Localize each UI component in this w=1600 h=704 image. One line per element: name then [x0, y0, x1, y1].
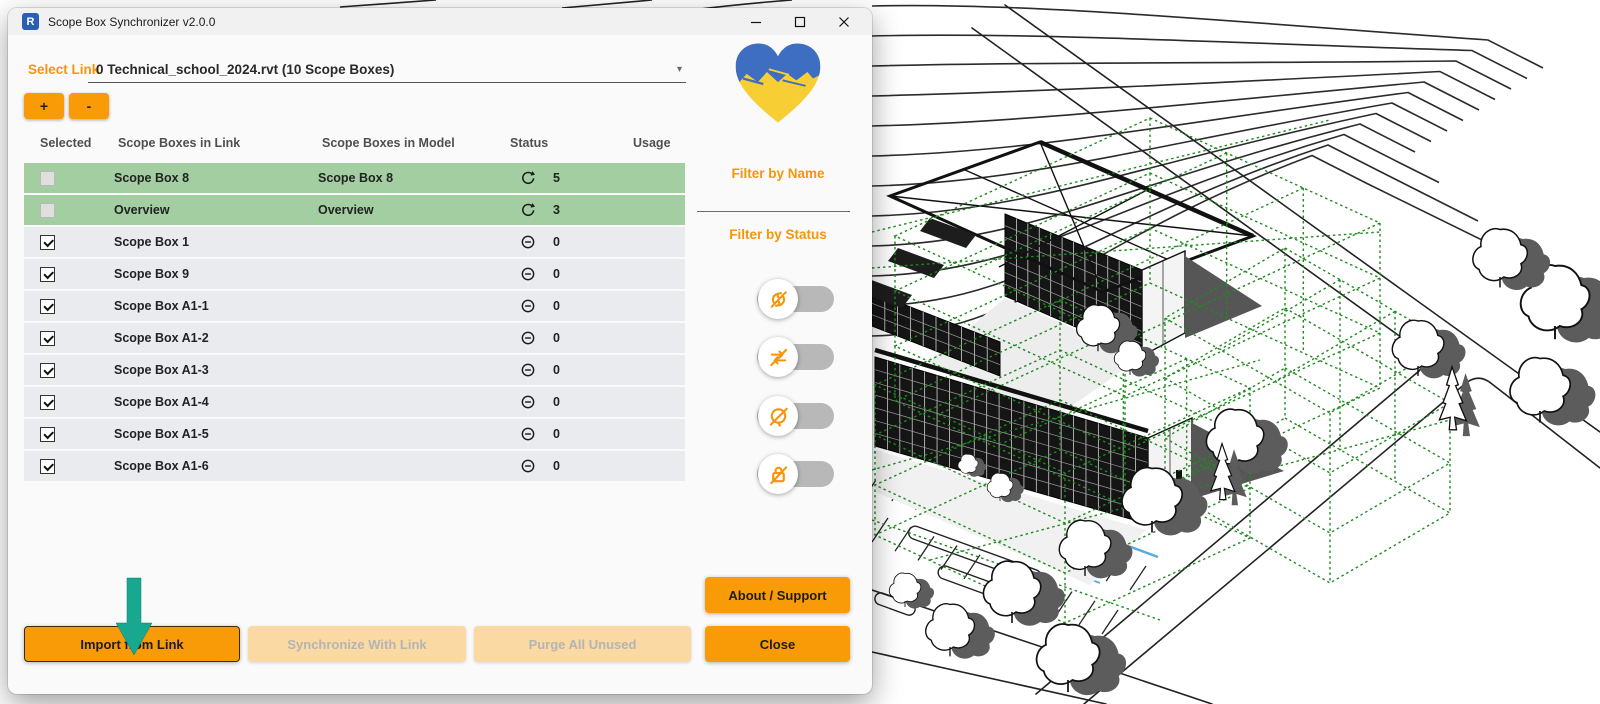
minimize-button[interactable] [734, 8, 778, 35]
status-icon [519, 234, 537, 248]
usage-count: 0 [553, 291, 685, 321]
block-off-icon [758, 396, 798, 436]
usage-count: 5 [553, 163, 685, 193]
scope-box-link-name: Scope Box 8 [114, 163, 318, 193]
status-icon [519, 330, 537, 344]
scope-box-link-name: Scope Box A1-3 [114, 355, 318, 385]
close-dialog-button[interactable]: Close [705, 626, 850, 662]
row-checkbox[interactable] [40, 363, 55, 378]
usage-count: 0 [553, 387, 685, 417]
about-support-button[interactable]: About / Support [705, 577, 850, 613]
screen: R Scope Box Synchronizer v2.0.0 Select L… [0, 0, 1600, 704]
table-header: Selected Scope Boxes in Link Scope Boxes… [24, 136, 685, 156]
column-selected: Selected [40, 136, 91, 150]
usage-count: 0 [553, 323, 685, 353]
table-row[interactable]: Scope Box A1-5 0 [24, 419, 685, 449]
table-row[interactable]: Scope Box 9 0 [24, 259, 685, 289]
table-row[interactable]: Scope Box 8 Scope Box 8 5 [24, 163, 685, 193]
table-row[interactable]: Scope Box A1-3 0 [24, 355, 685, 385]
scope-box-link-name: Overview [114, 195, 318, 225]
scope-box-link-name: Scope Box A1-1 [114, 291, 318, 321]
add-link-button[interactable]: + [24, 93, 64, 119]
maximize-button[interactable] [778, 8, 822, 35]
usage-count: 0 [553, 419, 685, 449]
row-checkbox[interactable] [40, 171, 55, 186]
swap-arrows-off-icon [758, 337, 798, 377]
status-icon [519, 394, 537, 408]
scope-box-link-name: Scope Box 1 [114, 227, 318, 257]
table-row[interactable]: Overview Overview 3 [24, 195, 685, 225]
status-icon [519, 362, 537, 376]
scope-box-link-name: Scope Box A1-2 [114, 323, 318, 353]
column-usage: Usage [633, 136, 671, 150]
filter-name-input[interactable] [697, 211, 850, 212]
ukraine-heart-logo [732, 40, 824, 128]
toggle-filter-lock-off[interactable] [755, 454, 841, 494]
link-dropdown[interactable]: 0 Technical_school_2024.rvt (10 Scope Bo… [88, 56, 686, 83]
row-checkbox[interactable] [40, 235, 55, 250]
status-icon [519, 458, 537, 472]
usage-count: 0 [553, 355, 685, 385]
usage-count: 0 [553, 227, 685, 257]
row-checkbox[interactable] [40, 395, 55, 410]
scope-box-table: Scope Box 8 Scope Box 8 5 Overview Overv… [24, 161, 685, 483]
status-icon [519, 298, 537, 312]
scope-box-model-name [318, 291, 503, 321]
table-row[interactable]: Scope Box 1 0 [24, 227, 685, 257]
scope-box-link-name: Scope Box 9 [114, 259, 318, 289]
usage-count: 3 [553, 195, 685, 225]
status-icon [519, 202, 537, 216]
scope-box-link-name: Scope Box A1-4 [114, 387, 318, 417]
scope-box-model-name: Scope Box 8 [318, 163, 503, 193]
import-from-link-button[interactable]: Import from Link [24, 626, 240, 662]
scope-box-synchronizer-dialog: R Scope Box Synchronizer v2.0.0 Select L… [8, 8, 872, 694]
row-checkbox[interactable] [40, 203, 55, 218]
remove-link-button[interactable]: - [69, 93, 109, 119]
scope-box-link-name: Scope Box A1-5 [114, 419, 318, 449]
toggle-filter-sync-off[interactable] [755, 279, 841, 319]
row-checkbox[interactable] [40, 459, 55, 474]
scope-box-model-name [318, 323, 503, 353]
table-row[interactable]: Scope Box A1-6 0 [24, 451, 685, 481]
table-row[interactable]: Scope Box A1-2 0 [24, 323, 685, 353]
scope-table-body: Scope Box 8 Scope Box 8 5 Overview Overv… [24, 163, 685, 481]
window-title: Scope Box Synchronizer v2.0.0 [48, 15, 215, 29]
scope-box-model-name [318, 355, 503, 385]
status-icon [519, 426, 537, 440]
link-dropdown-value: 0 Technical_school_2024.rvt (10 Scope Bo… [96, 62, 677, 77]
synchronize-with-link-button[interactable]: Synchronize With Link [248, 626, 466, 662]
filter-by-status-label: Filter by Status [698, 227, 858, 242]
app-icon: R [22, 13, 39, 30]
toggle-filter-block-off[interactable] [755, 396, 841, 436]
table-row[interactable]: Scope Box A1-1 0 [24, 291, 685, 321]
scope-box-model-name [318, 387, 503, 417]
usage-count: 0 [553, 451, 685, 481]
row-checkbox[interactable] [40, 427, 55, 442]
chevron-down-icon: ▾ [677, 64, 682, 75]
filter-by-name-label: Filter by Name [698, 166, 858, 181]
sync-off-icon [758, 279, 798, 319]
close-button[interactable] [822, 8, 866, 35]
lock-off-icon [758, 454, 798, 494]
scope-box-model-name [318, 227, 503, 257]
purge-all-unused-button[interactable]: Purge All Unused [474, 626, 691, 662]
table-row[interactable]: Scope Box A1-4 0 [24, 387, 685, 417]
scope-box-link-name: Scope Box A1-6 [114, 451, 318, 481]
scope-box-model-name [318, 419, 503, 449]
column-status: Status [510, 136, 548, 150]
toggle-filter-swap-off[interactable] [755, 337, 841, 377]
title-bar[interactable]: R Scope Box Synchronizer v2.0.0 [8, 8, 872, 35]
usage-count: 0 [553, 259, 685, 289]
row-checkbox[interactable] [40, 267, 55, 282]
column-model: Scope Boxes in Model [322, 136, 455, 150]
scope-box-model-name [318, 259, 503, 289]
status-icon [519, 266, 537, 280]
column-link: Scope Boxes in Link [118, 136, 240, 150]
row-checkbox[interactable] [40, 299, 55, 314]
scope-box-model-name [318, 451, 503, 481]
row-checkbox[interactable] [40, 331, 55, 346]
scope-box-model-name: Overview [318, 195, 503, 225]
status-icon [519, 170, 537, 184]
